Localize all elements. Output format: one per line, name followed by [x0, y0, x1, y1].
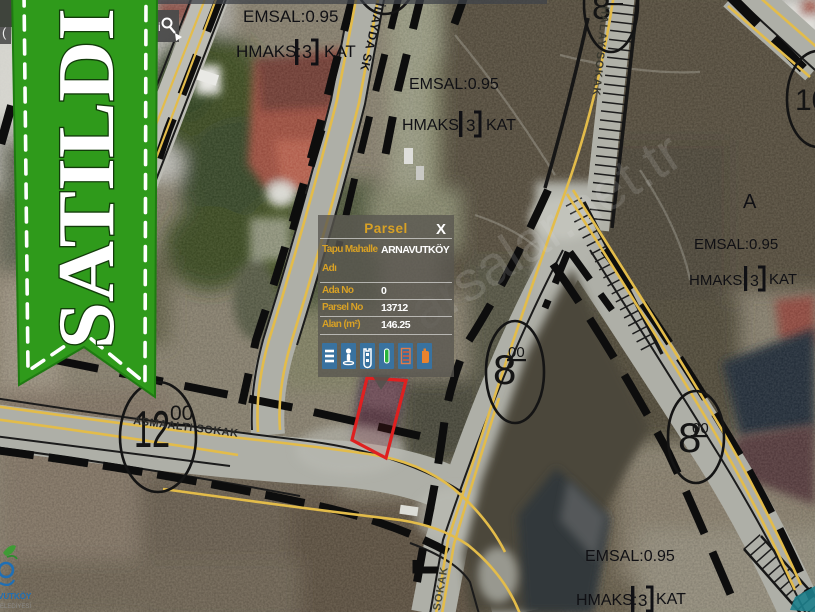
svg-text:10: 10: [795, 84, 815, 117]
svg-text:3: 3: [638, 591, 647, 610]
svg-text:HMAKS:: HMAKS:: [402, 117, 463, 134]
svg-text:SATILDI: SATILDI: [41, 8, 131, 349]
svg-text:EMSAL:0.95: EMSAL:0.95: [694, 236, 778, 253]
svg-text:3: 3: [750, 273, 759, 290]
svg-text:3: 3: [466, 116, 475, 135]
svg-text:HMAKS:: HMAKS:: [689, 272, 747, 289]
svg-text:KAT: KAT: [769, 271, 797, 288]
svg-text:00: 00: [508, 344, 525, 361]
svg-text:KAT: KAT: [486, 117, 516, 134]
svg-text:00: 00: [692, 420, 709, 437]
svg-text:EMSAL:0.95: EMSAL:0.95: [409, 76, 499, 93]
svg-text:A: A: [743, 191, 757, 213]
svg-text:EMSAL:0.95: EMSAL:0.95: [585, 548, 675, 565]
svg-text:KAT: KAT: [324, 42, 356, 61]
svg-text:HMAKS:: HMAKS:: [576, 592, 637, 609]
svg-text:3: 3: [302, 42, 312, 62]
svg-text:KAT: KAT: [656, 591, 686, 608]
